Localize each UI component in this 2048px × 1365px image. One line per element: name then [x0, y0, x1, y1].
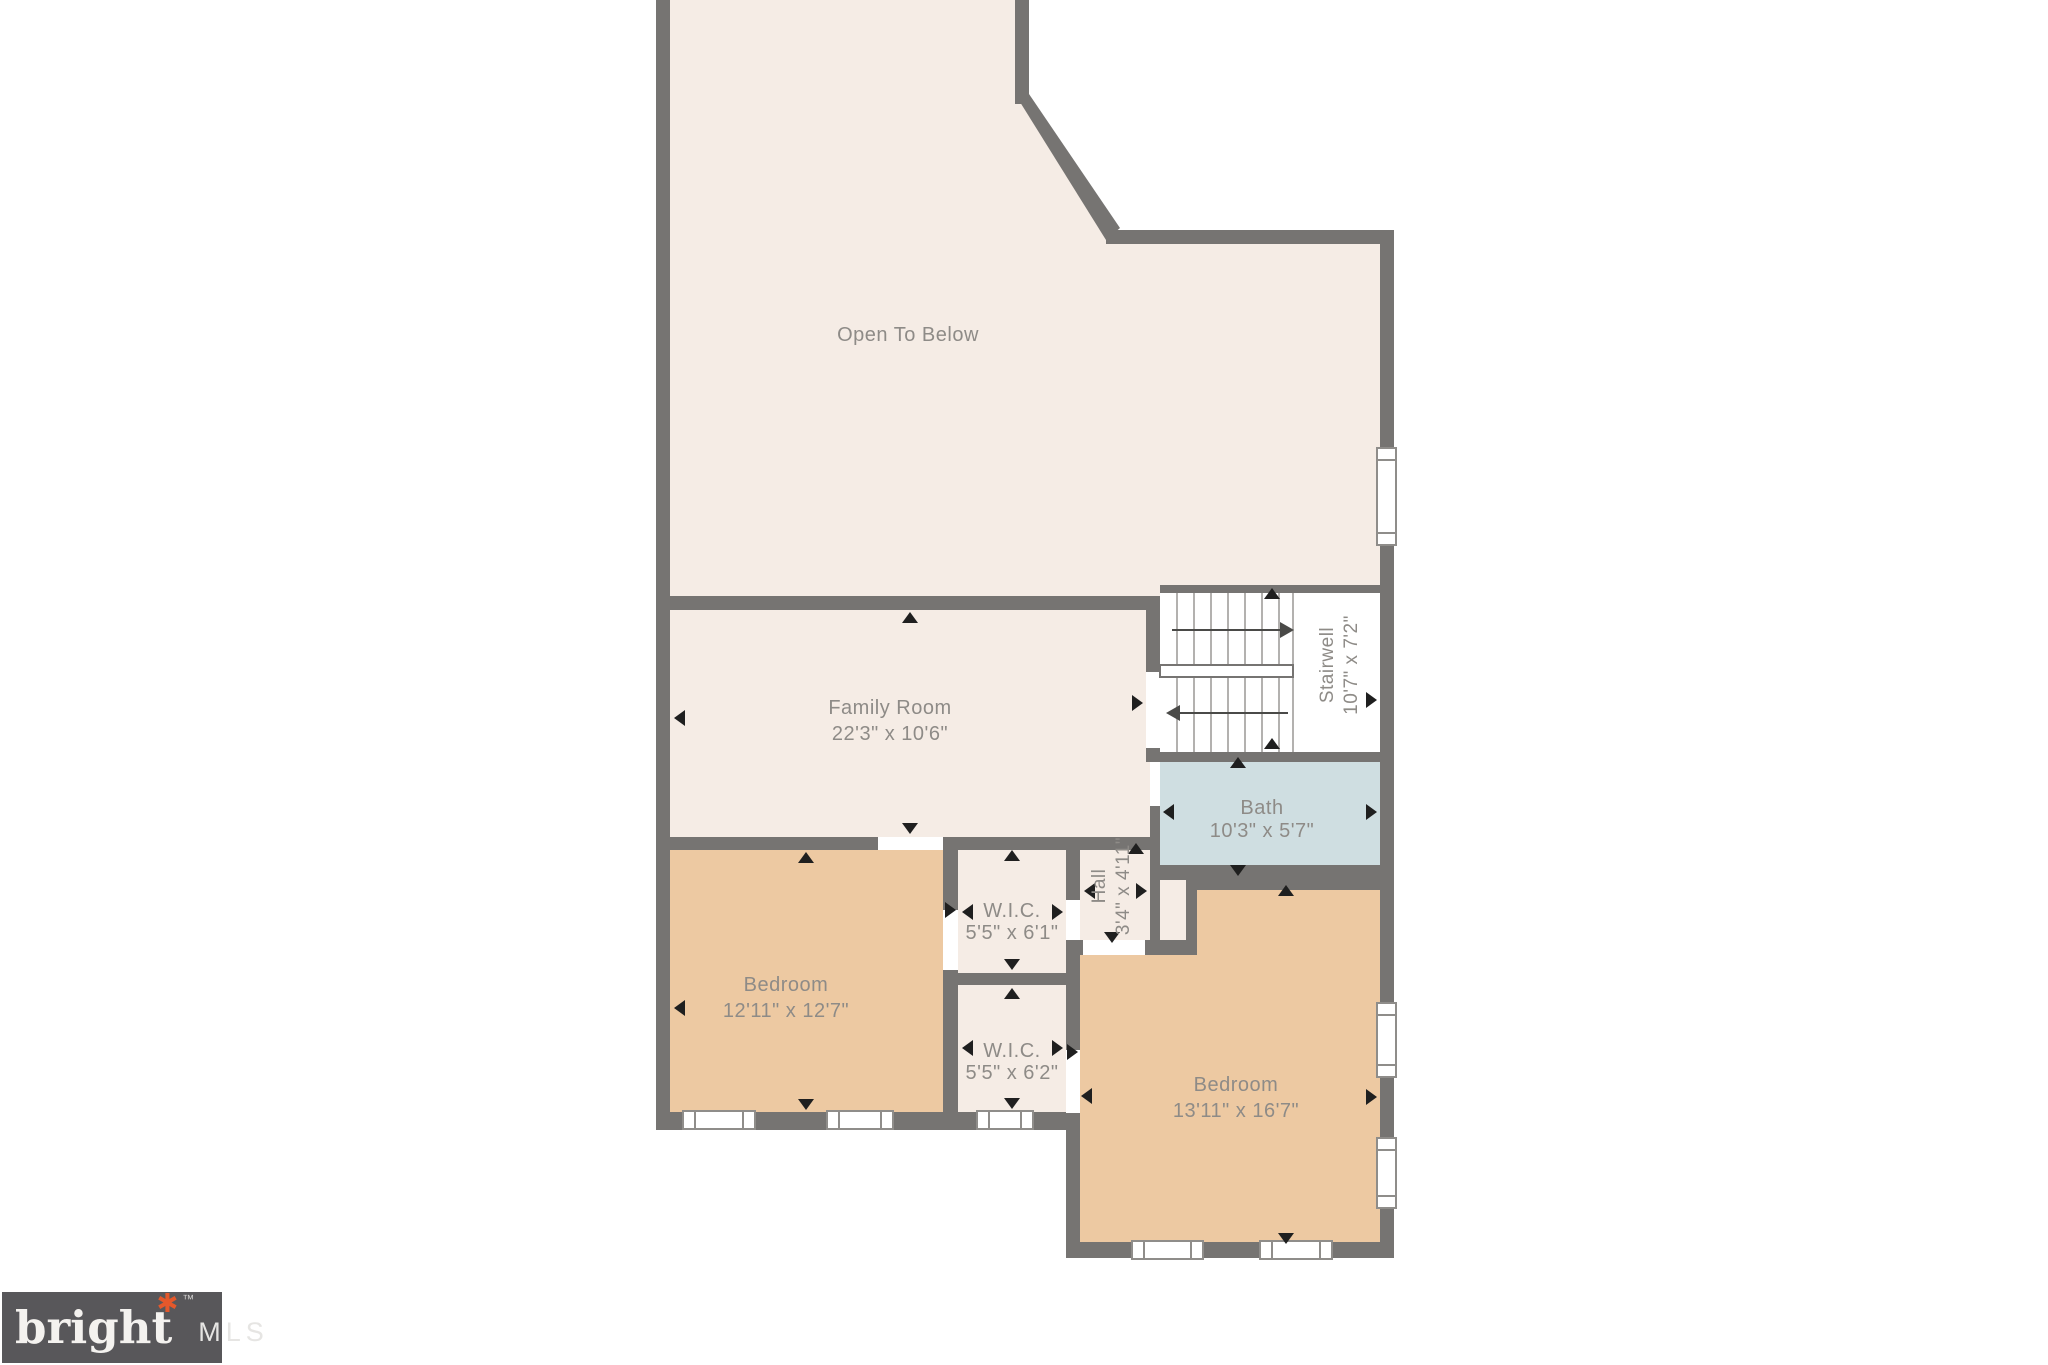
label-stairwell-name: Stairwell	[1317, 627, 1338, 703]
wall-family-right-stub	[1146, 748, 1160, 762]
label-stairwell-dims: 10'7" x 7'2"	[1341, 615, 1362, 715]
wall-bedroom1-right-upper	[943, 837, 958, 910]
wall-bath-bottom	[1150, 865, 1380, 880]
label-family-room-dims: 22'3" x 10'6"	[832, 723, 948, 745]
bright-mls-star-icon: ✱	[156, 1291, 178, 1317]
door-bedroom2-wic2	[1066, 1050, 1080, 1113]
floorplan-drawing: Open To Below Family Room 22'3" x 10'6" …	[0, 0, 2048, 1365]
label-family-room-name: Family Room	[828, 697, 951, 719]
wall-topleft-vertical	[1015, 0, 1029, 104]
wall-family-right-upper	[1146, 596, 1160, 672]
wall-top-horizontal	[1106, 230, 1394, 244]
label-bath-dims: 10'3" x 5'7"	[1210, 820, 1315, 842]
label-hall-dims: 3'4" x 4'11"	[1113, 837, 1134, 935]
wall-bedroom2-top	[1186, 878, 1380, 890]
label-wic2-name: W.I.C.	[983, 1040, 1040, 1062]
label-bath-name: Bath	[1240, 797, 1283, 819]
wall-bottom-bedroom2	[1066, 1242, 1394, 1258]
label-open-to-below: Open To Below	[837, 324, 979, 346]
window-right-bedroom2-lower	[1377, 1138, 1396, 1208]
wall-hall-bottom-right	[1145, 940, 1197, 955]
label-bedroom1-name: Bedroom	[744, 974, 829, 996]
bright-mls-brand-text: bright ✱ ™	[15, 1305, 172, 1350]
wall-bath-left	[1150, 806, 1160, 955]
label-wic1-name: W.I.C.	[983, 900, 1040, 922]
window-bedroom1-bottom-left	[683, 1111, 755, 1129]
floorplan-page: Open To Below Family Room 22'3" x 10'6" …	[0, 0, 2048, 1365]
window-bedroom1-bottom-right	[827, 1111, 893, 1129]
window-right-bedroom2-upper	[1377, 1003, 1396, 1077]
wall-wic-divider	[943, 973, 1080, 985]
door-family-stairwell	[1146, 672, 1160, 748]
wall-right	[1380, 230, 1394, 1258]
door-hall-wic1	[1066, 900, 1080, 940]
door-hall-bath	[1150, 762, 1160, 806]
label-hall-name: Hall	[1089, 869, 1110, 904]
trademark-symbol: ™	[182, 1293, 194, 1305]
wall-bath-top	[1160, 752, 1380, 762]
wall-family-top	[656, 596, 1160, 610]
label-wic2-dims: 5'5" x 6'2"	[966, 1062, 1059, 1084]
window-bedroom2-bottom-left	[1132, 1241, 1203, 1259]
mls-wordmark: MLS	[198, 1317, 269, 1348]
label-bedroom2-dims: 13'11" x 16'7"	[1173, 1100, 1299, 1122]
wall-wic1-right-upper	[1066, 847, 1080, 900]
window-bedroom2-bottom-right	[1260, 1241, 1332, 1259]
wall-left	[656, 0, 670, 1130]
wall-wic2-right-upper	[1066, 985, 1080, 1050]
wall-bedroom1-right-lower	[943, 970, 958, 1130]
label-bedroom2-name: Bedroom	[1194, 1074, 1279, 1096]
door-bedroom1-wic1	[943, 910, 958, 970]
label-wic1-dims: 5'5" x 6'1"	[966, 922, 1059, 944]
wall-family-bottom-left	[656, 837, 878, 850]
wall-wic2-right-lower	[1066, 1113, 1080, 1258]
stair-landing-divider	[1160, 665, 1293, 677]
door-hall-bedroom2	[1083, 940, 1145, 955]
label-bedroom1-dims: 12'11" x 12'7"	[723, 1000, 849, 1022]
bright-mls-logo: bright ✱ ™ MLS	[2, 1292, 222, 1363]
door-family-bedroom1	[878, 837, 943, 850]
window-wic2-bottom	[977, 1111, 1033, 1129]
window-right-open-below	[1377, 448, 1396, 545]
bright-wordmark: bright	[15, 1301, 172, 1354]
